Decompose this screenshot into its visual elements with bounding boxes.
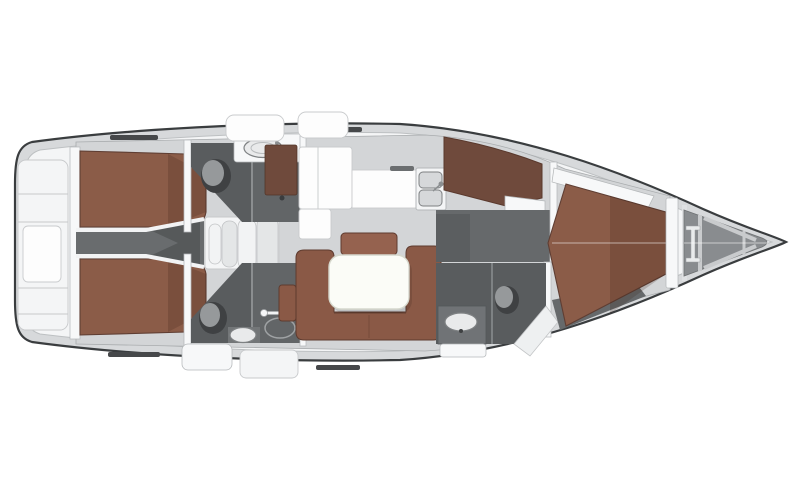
aft-cabins [76,140,206,346]
step-tread [238,218,256,270]
toilet-lid [495,286,513,308]
faucet [459,329,463,333]
cockpit-bench [182,344,232,370]
step-tread [222,221,237,267]
cockpit-bench [240,350,298,378]
deck-hatch [316,365,360,370]
bulkhead-aft-bottom [184,254,191,346]
sink-forward [445,313,477,331]
salon-sofa-backrest [341,233,397,255]
shower-wand-knob [261,310,268,317]
deck-hatch [108,352,160,357]
salon-table [329,255,409,309]
toilet-lid [202,160,224,186]
yacht-floorplan-canvas [0,0,800,500]
galley-counter [352,170,418,208]
galley-cabinet [299,209,331,239]
yacht-floorplan [0,0,800,500]
cooktop [390,166,414,171]
transom-recess [23,226,61,282]
collision-bulkhead [666,198,678,288]
sink-starboard [230,328,256,343]
cockpit-locker [226,115,284,141]
swim-platform [18,147,80,339]
forward-head-step [440,344,486,357]
forward-head [436,263,558,357]
galley-counter-tall [299,147,352,209]
toilet-lid [200,303,220,327]
step-tread [209,224,221,264]
passage-shading [436,214,470,262]
bulkhead-aft-top [184,140,191,232]
galley-sink [419,190,442,206]
salon-bench [279,285,296,321]
cockpit-locker [298,112,348,138]
deck-hatch [110,135,158,140]
shower-drain [280,196,285,201]
faucet [275,141,279,145]
wardrobe [265,145,297,195]
